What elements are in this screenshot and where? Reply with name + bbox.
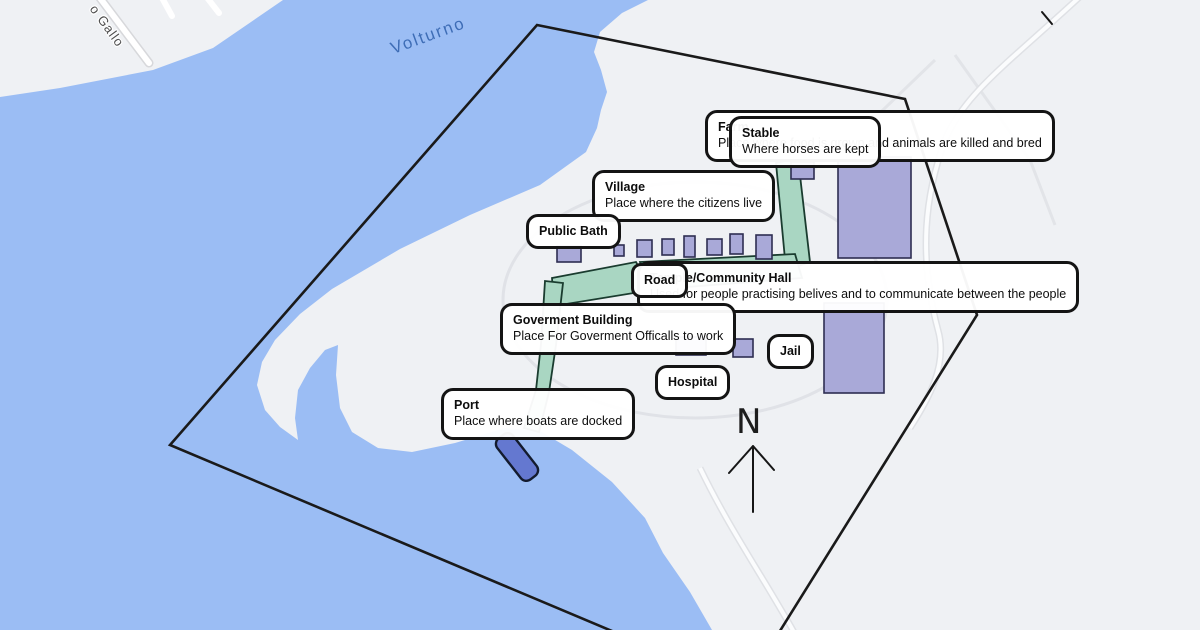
map-canvas: N Volturno o Gallo Farm Place where food…	[0, 0, 1200, 630]
callout-title: Temple/Community Hall	[650, 270, 1066, 286]
north-arrow-icon	[729, 446, 774, 512]
building-house[interactable]	[730, 234, 743, 254]
callout-title: Road	[644, 272, 675, 288]
compass-north: N	[729, 402, 774, 512]
callout-title: Village	[605, 179, 762, 195]
callout-body: Place where the citizens live	[605, 195, 762, 211]
callout-title: Public Bath	[539, 223, 608, 239]
pier-icon	[205, 0, 219, 13]
callout-public-bath[interactable]: Public Bath	[526, 214, 621, 249]
building-house[interactable]	[756, 235, 772, 259]
callout-jail[interactable]: Jail	[767, 334, 814, 369]
callout-body: Used for people practising belives and t…	[650, 286, 1066, 302]
building-stable[interactable]	[838, 157, 911, 258]
pier-icon	[161, 0, 172, 16]
building-house[interactable]	[707, 239, 722, 255]
callout-title: Stable	[742, 125, 868, 141]
callout-body: Place where boats are docked	[454, 413, 622, 429]
callout-hospital[interactable]: Hospital	[655, 365, 730, 400]
callout-village[interactable]: Village Place where the citizens live	[592, 170, 775, 222]
building-house[interactable]	[637, 240, 652, 257]
callout-stable[interactable]: Stable Where horses are kept	[729, 116, 881, 168]
callout-title: Hospital	[668, 374, 717, 390]
compass-n-label: N	[736, 402, 761, 442]
callout-title: Goverment Building	[513, 312, 723, 328]
callout-body: Where horses are kept	[742, 141, 868, 157]
callout-title: Jail	[780, 343, 801, 359]
callout-body: Place For Goverment Officalls to work	[513, 328, 723, 344]
callout-port[interactable]: Port Place where boats are docked	[441, 388, 635, 440]
faint-highway-casing	[910, 0, 1085, 428]
building-house[interactable]	[684, 236, 695, 257]
callout-goverment-building[interactable]: Goverment Building Place For Goverment O…	[500, 303, 736, 355]
callout-title: Port	[454, 397, 622, 413]
callout-road[interactable]: Road	[631, 263, 688, 298]
building-temple[interactable]	[824, 303, 884, 393]
building-house[interactable]	[662, 239, 674, 255]
